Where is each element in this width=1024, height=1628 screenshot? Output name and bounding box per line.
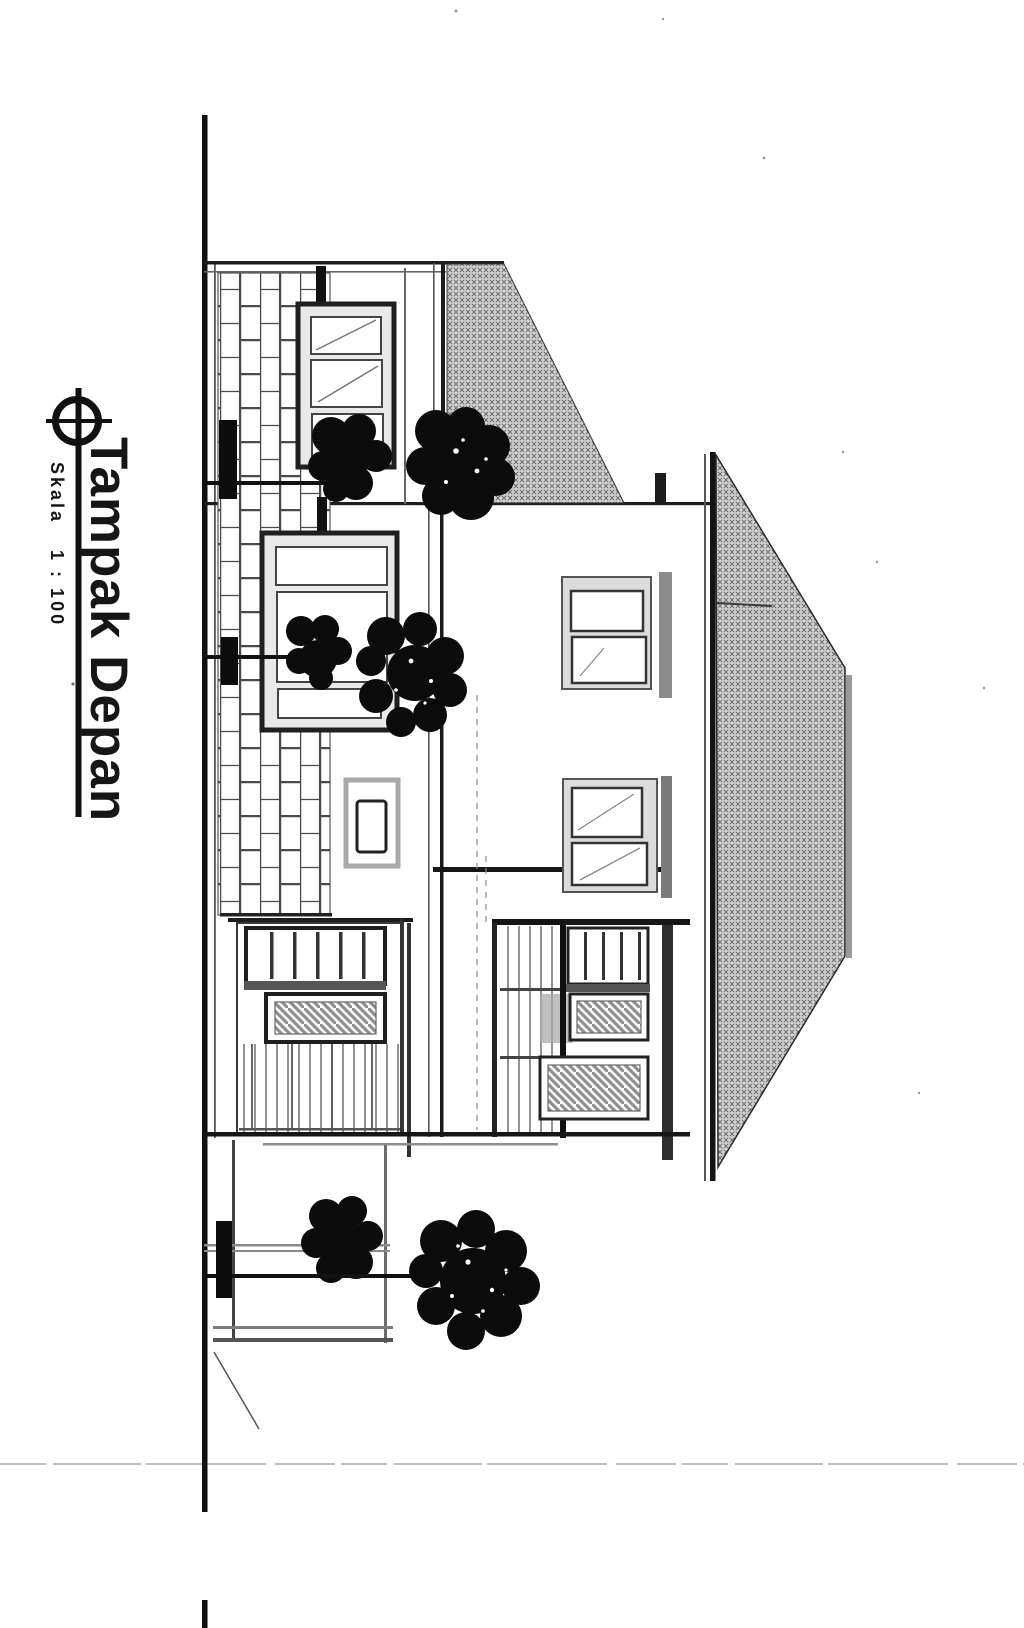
tree-trunk (206, 655, 296, 659)
entry-door-assembly (492, 919, 690, 1138)
left-gate (228, 918, 413, 1157)
gate-glass-panel (266, 994, 385, 1042)
ground-line (202, 115, 216, 1628)
shrub (221, 637, 238, 685)
scale-label: Skala (47, 462, 67, 524)
tree-trunk (206, 1274, 438, 1278)
louver-window (566, 928, 650, 992)
floor-lines (204, 1132, 690, 1146)
gate-louver-window (244, 928, 386, 990)
scale-note: Skala1 : 100 (45, 462, 67, 712)
gate-slats (239, 1044, 401, 1133)
elevation-drawing (0, 0, 1024, 1628)
lintel-bar (661, 776, 672, 898)
glass-panel (570, 994, 648, 1040)
shrub (216, 1221, 232, 1298)
shrub (219, 420, 237, 499)
vent-box (346, 780, 398, 866)
scanned-drawing-page: Tampak Depan Skala1 : 100 (0, 0, 1024, 1628)
scale-value: 1 : 100 (47, 550, 67, 627)
facade-window-upper (562, 572, 672, 698)
drawing-title: Tampak Depan (83, 437, 139, 837)
facade-window-lower (563, 776, 672, 898)
glass-panel (540, 1057, 648, 1119)
roof-post (655, 473, 666, 503)
main-roof (704, 452, 849, 1181)
lintel-bar (659, 572, 672, 698)
planter-box (213, 1140, 393, 1429)
